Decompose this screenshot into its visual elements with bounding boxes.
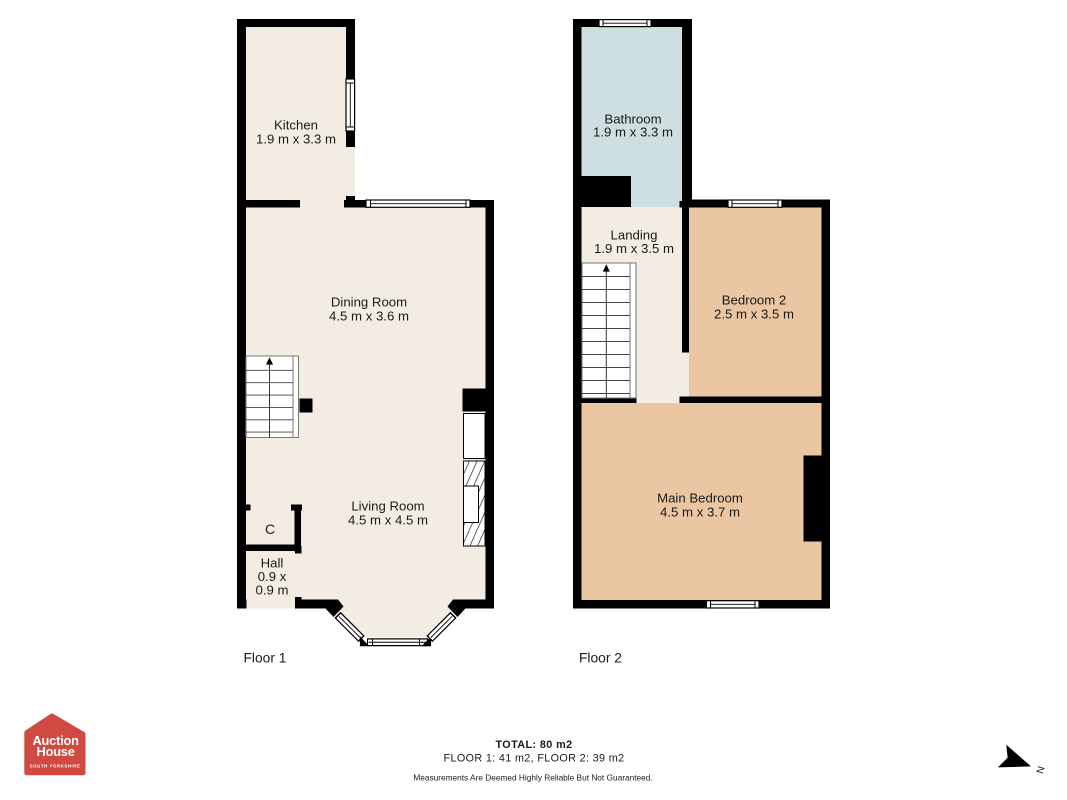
svg-text:1.9 m x 3.3 m: 1.9 m x 3.3 m bbox=[256, 132, 336, 147]
svg-text:SOUTH YORKSHIRE: SOUTH YORKSHIRE bbox=[30, 763, 81, 768]
svg-text:Floor 1: Floor 1 bbox=[244, 651, 287, 666]
svg-text:4.5 m x 4.5 m: 4.5 m x 4.5 m bbox=[348, 513, 428, 528]
svg-text:Dining Room: Dining Room bbox=[331, 295, 407, 310]
svg-text:1.9 m x 3.3 m: 1.9 m x 3.3 m bbox=[593, 125, 673, 140]
svg-text:2.5 m x 3.5 m: 2.5 m x 3.5 m bbox=[714, 307, 794, 322]
svg-text:FLOOR 1: 41 m2, FLOOR 2: 39 m2: FLOOR 1: 41 m2, FLOOR 2: 39 m2 bbox=[444, 753, 625, 765]
svg-text:Floor 2: Floor 2 bbox=[579, 651, 622, 666]
svg-text:1.9 m x 3.5 m: 1.9 m x 3.5 m bbox=[594, 241, 674, 256]
svg-text:Bedroom 2: Bedroom 2 bbox=[722, 293, 787, 308]
svg-text:Measurements Are Deemed Highly: Measurements Are Deemed Highly Reliable … bbox=[413, 773, 652, 783]
svg-text:House: House bbox=[37, 744, 75, 759]
svg-text:0.9 m: 0.9 m bbox=[256, 583, 289, 598]
svg-text:Kitchen: Kitchen bbox=[274, 118, 318, 133]
svg-text:TOTAL: 80 m2: TOTAL: 80 m2 bbox=[496, 739, 573, 751]
svg-text:Living Room: Living Room bbox=[351, 499, 424, 514]
svg-text:4.5 m x 3.7 m: 4.5 m x 3.7 m bbox=[660, 505, 740, 520]
svg-text:C: C bbox=[265, 521, 275, 537]
svg-text:4.5 m x 3.6 m: 4.5 m x 3.6 m bbox=[329, 309, 409, 324]
svg-text:Main Bedroom: Main Bedroom bbox=[657, 491, 743, 506]
